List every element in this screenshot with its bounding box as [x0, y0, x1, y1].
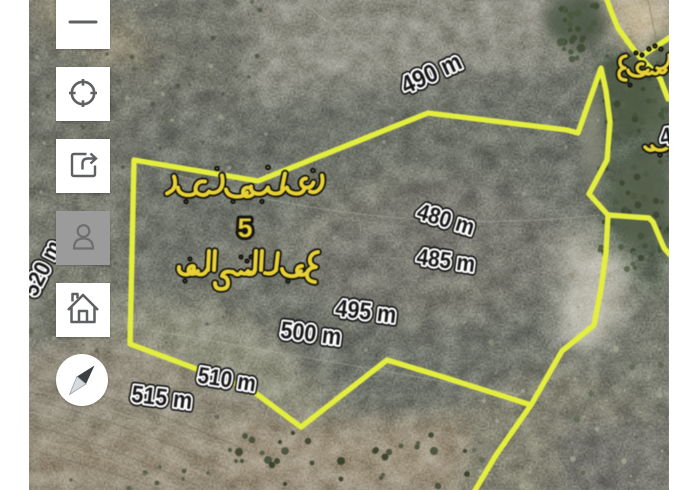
svg-text:5: 5 [237, 213, 252, 243]
